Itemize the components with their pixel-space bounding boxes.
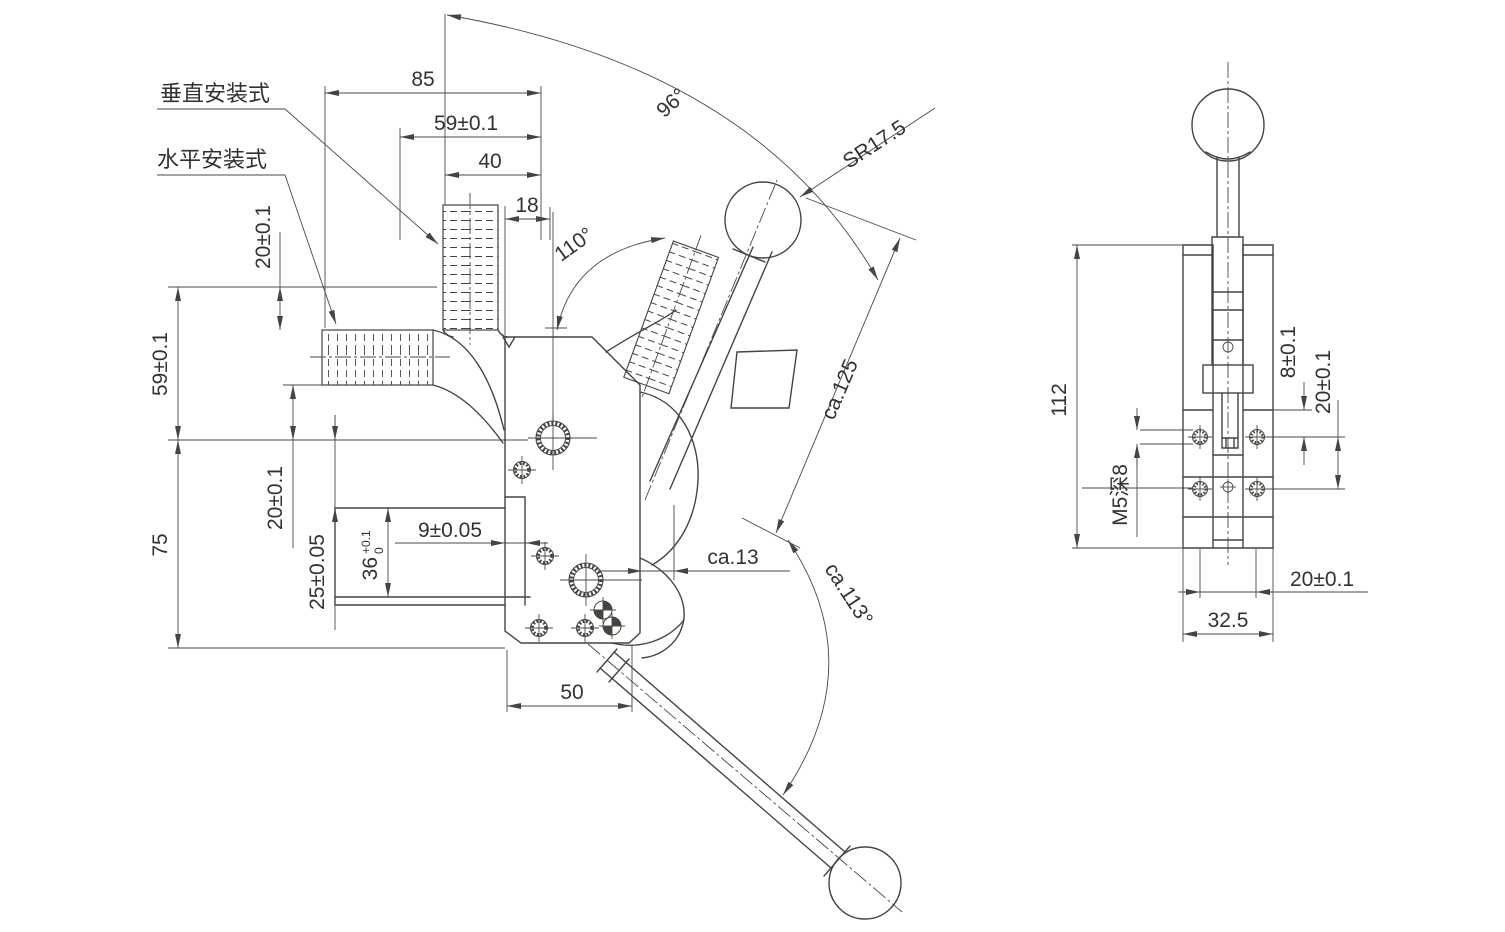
- dim-112: 112: [1048, 383, 1071, 416]
- clamp-arm: [731, 350, 797, 408]
- dim-9: 9±0.05: [418, 519, 482, 542]
- vertical-stud: [443, 193, 507, 345]
- dim-59-vertical: 59±0.1: [149, 332, 172, 396]
- dim-96deg: 96°: [652, 84, 691, 122]
- tapped-hole: [1188, 425, 1212, 449]
- bore-hole-upper: [528, 414, 597, 470]
- lever-lowered: [588, 644, 902, 919]
- dimensions-main: 85 59±0.1 40 18 20±0.1 59±0.1 75 20±0.1 …: [149, 15, 935, 795]
- dim-20-mid: 20±0.1: [264, 466, 287, 530]
- dim-25: 25±0.05: [306, 534, 329, 610]
- leader-labels: 垂直安装式 水平安装式: [157, 81, 438, 324]
- side-view: 112 8±0.1 20±0.1 M5深8 20±0.1: [1048, 62, 1368, 642]
- screw-hole-d: [571, 614, 599, 642]
- dim-20-right: 20±0.1: [1312, 350, 1335, 414]
- dim-59-horizontal: 59±0.1: [434, 112, 498, 135]
- dim-sr17-5: SR17.5: [839, 116, 910, 173]
- dim-ca113deg: ca.113°: [820, 559, 877, 630]
- side-tapped-holes: [1188, 425, 1269, 501]
- dim-36-tol-lower: 0: [372, 547, 386, 554]
- dim-36-group: 36 +0.1 0: [359, 530, 386, 580]
- dim-ca125: ca.125: [817, 356, 863, 423]
- dim-20-top: 20±0.1: [252, 205, 275, 269]
- bore-hole-lower: [560, 554, 642, 606]
- extension-lines: [168, 14, 916, 712]
- screw-hole-b: [531, 542, 559, 570]
- label-vertical-mount: 垂直安装式: [160, 81, 270, 106]
- drawing-canvas: 85 59±0.1 40 18 20±0.1 59±0.1 75 20±0.1 …: [0, 0, 1505, 932]
- screw-hole-a: [508, 456, 536, 484]
- dim-32-5: 32.5: [1208, 609, 1249, 632]
- dim-36: 36: [359, 557, 382, 580]
- angled-spindle: [619, 227, 724, 408]
- dim-m5-depth8: M5深8: [1109, 464, 1132, 526]
- horizontal-stud: [310, 330, 504, 443]
- dim-20-bottom: 20±0.1: [1290, 568, 1354, 591]
- screw-hole-c: [525, 614, 553, 642]
- dim-50: 50: [560, 681, 583, 704]
- dim-85: 85: [411, 68, 434, 91]
- dim-18: 18: [515, 194, 538, 217]
- ball-knob-raised: [725, 182, 801, 258]
- dim-8: 8±0.1: [1277, 326, 1300, 378]
- dim-40: 40: [478, 150, 501, 173]
- main-view: 85 59±0.1 40 18 20±0.1 59±0.1 75 20±0.1 …: [149, 14, 935, 919]
- tapped-hole: [1188, 477, 1212, 501]
- label-horizontal-mount: 水平安装式: [157, 147, 267, 172]
- technical-drawing: 85 59±0.1 40 18 20±0.1 59±0.1 75 20±0.1 …: [0, 0, 1505, 932]
- dim-75: 75: [149, 533, 172, 556]
- dim-ca13: ca.13: [707, 546, 758, 569]
- dim-36-tol-upper: +0.1: [359, 530, 373, 554]
- dimensions-side: 112 8±0.1 20±0.1 M5深8 20±0.1: [1048, 245, 1368, 642]
- dim-110deg: 110°: [550, 223, 597, 266]
